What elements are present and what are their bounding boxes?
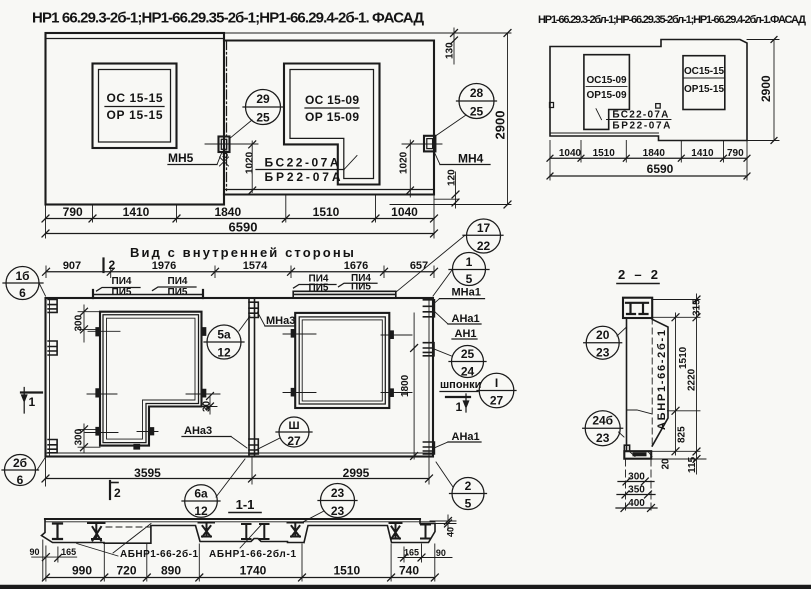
svg-text:1976: 1976	[152, 260, 176, 272]
svg-text:2995: 2995	[343, 466, 370, 480]
svg-text:740: 740	[399, 564, 419, 578]
svg-text:300: 300	[74, 428, 85, 445]
svg-text:ПИ5: ПИ5	[168, 287, 188, 298]
svg-text:ПИ5: ПИ5	[112, 287, 132, 298]
svg-text:825: 825	[677, 426, 688, 443]
svg-text:Ш: Ш	[288, 420, 299, 432]
svg-text:1840: 1840	[643, 148, 666, 159]
svg-text:24б: 24б	[592, 414, 613, 428]
svg-text:1740: 1740	[240, 564, 267, 578]
svg-text:1410: 1410	[123, 205, 150, 219]
svg-text:1574: 1574	[243, 260, 268, 272]
svg-text:1840: 1840	[214, 205, 241, 219]
svg-text:НР1 66.29.3-2б-1;НР1-66.29.35-: НР1 66.29.3-2б-1;НР1-66.29.35-2б-1;НР1-6…	[32, 10, 424, 27]
svg-text:315: 315	[692, 299, 703, 316]
svg-text:657: 657	[410, 260, 428, 272]
svg-text:23: 23	[596, 431, 610, 445]
svg-text:22: 22	[477, 239, 491, 253]
svg-text:АНа1: АНа1	[452, 313, 480, 325]
svg-text:АНа1: АНа1	[452, 431, 480, 443]
svg-text:90: 90	[436, 548, 446, 558]
svg-text:40: 40	[446, 527, 456, 537]
svg-text:3595: 3595	[134, 466, 161, 480]
svg-text:НР1-66.29.3-2бл-1;НР-66.29.35-: НР1-66.29.3-2бл-1;НР-66.29.35-2бл-1;НР1-…	[538, 14, 806, 26]
svg-text:5: 5	[465, 497, 472, 511]
svg-text:6590: 6590	[229, 220, 258, 235]
svg-text:17: 17	[477, 221, 491, 235]
svg-text:12: 12	[194, 504, 208, 518]
svg-text:МНа1: МНа1	[452, 287, 481, 299]
svg-text:115: 115	[687, 456, 698, 473]
svg-text:165: 165	[404, 548, 419, 558]
svg-text:1: 1	[456, 400, 463, 414]
svg-text:1510: 1510	[313, 205, 340, 219]
svg-text:300: 300	[74, 314, 85, 331]
svg-text:ОР15-15: ОР15-15	[684, 84, 724, 95]
svg-text:1б: 1б	[15, 269, 29, 283]
svg-text:ПИ4: ПИ4	[112, 276, 132, 287]
svg-text:ОР 15-15: ОР 15-15	[107, 108, 163, 122]
svg-text:165: 165	[61, 547, 76, 557]
svg-text:790: 790	[63, 205, 83, 219]
svg-text:12: 12	[217, 346, 231, 360]
svg-text:1800: 1800	[400, 374, 411, 397]
svg-text:АБНР1-66-2б-1: АБНР1-66-2б-1	[120, 548, 198, 560]
svg-text:МН4: МН4	[458, 152, 484, 166]
svg-text:1040: 1040	[391, 205, 418, 219]
svg-text:АБНР1-66-2бл-1: АБНР1-66-2бл-1	[209, 548, 296, 560]
svg-text:6590: 6590	[647, 162, 674, 176]
svg-text:ПИ4: ПИ4	[168, 276, 188, 287]
svg-text:130: 130	[445, 42, 456, 59]
svg-text:ОС 15-15: ОС 15-15	[107, 91, 163, 105]
svg-text:6: 6	[19, 286, 26, 300]
svg-text:400: 400	[628, 498, 645, 509]
svg-text:25: 25	[470, 105, 484, 119]
svg-text:27: 27	[287, 434, 301, 448]
svg-text:ОС15-09: ОС15-09	[587, 75, 627, 86]
svg-text:300: 300	[628, 472, 645, 483]
svg-text:28: 28	[470, 86, 484, 100]
svg-text:20: 20	[661, 458, 672, 470]
svg-text:990: 990	[72, 564, 92, 578]
svg-text:23: 23	[331, 504, 345, 518]
svg-text:890: 890	[161, 564, 181, 578]
svg-text:ОР15-09: ОР15-09	[587, 90, 627, 101]
svg-text:24: 24	[461, 365, 475, 379]
svg-text:МН5: МН5	[168, 151, 194, 165]
svg-text:ОС 15-09: ОС 15-09	[305, 93, 359, 107]
svg-text:27: 27	[490, 394, 504, 408]
svg-text:1020: 1020	[399, 151, 410, 174]
svg-text:2220: 2220	[687, 368, 698, 391]
svg-text:790: 790	[727, 148, 744, 159]
svg-text:1510: 1510	[593, 148, 616, 159]
svg-text:1510: 1510	[333, 564, 360, 578]
svg-text:МНа3: МНа3	[266, 315, 295, 327]
svg-text:1: 1	[466, 255, 473, 269]
svg-text:90: 90	[29, 547, 39, 557]
svg-text:I: I	[495, 376, 498, 390]
svg-text:6: 6	[17, 473, 24, 487]
svg-text:23: 23	[331, 486, 345, 500]
svg-text:25: 25	[256, 111, 270, 125]
svg-text:25: 25	[461, 347, 475, 361]
svg-text:АН1: АН1	[455, 328, 477, 340]
svg-text:5а: 5а	[217, 328, 231, 342]
svg-text:2б: 2б	[13, 456, 27, 470]
svg-text:Вид с внутренней стороны: Вид с внутренней стороны	[130, 245, 356, 260]
svg-text:1510: 1510	[678, 346, 689, 369]
svg-text:120: 120	[447, 169, 458, 186]
svg-text:350: 350	[628, 485, 645, 496]
svg-text:АНа3: АНа3	[184, 425, 212, 437]
svg-text:6а: 6а	[194, 487, 208, 501]
svg-text:1040: 1040	[559, 148, 582, 159]
svg-text:1410: 1410	[691, 148, 714, 159]
svg-text:907: 907	[63, 260, 81, 272]
svg-text:1-1: 1-1	[236, 497, 255, 512]
svg-text:ОС15-15: ОС15-15	[684, 66, 724, 77]
svg-text:шпонки: шпонки	[440, 379, 481, 391]
svg-text:5: 5	[466, 272, 473, 286]
svg-text:20: 20	[596, 328, 610, 342]
svg-text:2: 2	[114, 486, 121, 500]
svg-text:23: 23	[596, 346, 610, 360]
svg-text:5: 5	[222, 149, 228, 161]
svg-text:1: 1	[29, 395, 36, 409]
svg-text:2: 2	[465, 479, 472, 493]
svg-text:29: 29	[256, 92, 270, 106]
svg-text:2 – 2: 2 – 2	[618, 267, 658, 282]
svg-text:ОР 15-09: ОР 15-09	[305, 110, 359, 124]
svg-text:30: 30	[202, 400, 213, 412]
svg-text:1020: 1020	[245, 151, 256, 174]
svg-text:1676: 1676	[344, 260, 368, 272]
svg-text:2900: 2900	[759, 75, 773, 102]
svg-text:2900: 2900	[493, 111, 508, 140]
svg-text:720: 720	[116, 564, 136, 578]
